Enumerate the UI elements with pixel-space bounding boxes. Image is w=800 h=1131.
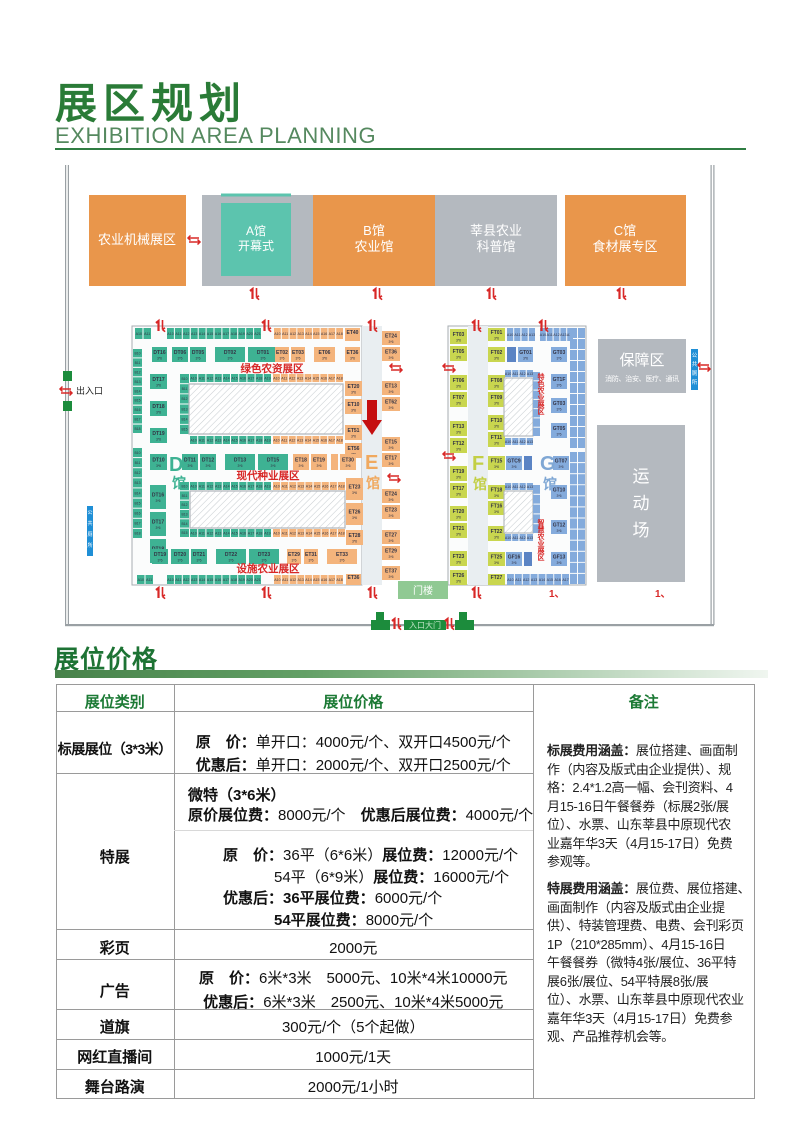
svg-text:3*6: 3*6 — [556, 561, 561, 565]
svg-text:3*6: 3*6 — [456, 533, 461, 537]
svg-text:FT06: FT06 — [453, 378, 465, 384]
svg-text:A10: A10 — [507, 333, 513, 337]
svg-text:DT18: DT18 — [152, 404, 164, 410]
svg-text:B11: B11 — [135, 361, 141, 365]
svg-text:门楼: 门楼 — [413, 584, 433, 597]
svg-text:A11: A11 — [515, 578, 521, 582]
svg-text:食材展专区: 食材展专区 — [592, 239, 657, 254]
svg-text:A11: A11 — [512, 536, 518, 540]
svg-text:A17: A17 — [329, 578, 335, 582]
svg-text:A15: A15 — [231, 531, 237, 535]
svg-text:3*6: 3*6 — [388, 340, 393, 344]
svg-text:B15: B15 — [181, 531, 187, 535]
svg-text:FT05: FT05 — [453, 349, 465, 355]
svg-text:动: 动 — [633, 494, 650, 513]
svg-text:A14: A14 — [305, 438, 311, 442]
svg-text:A14: A14 — [223, 484, 229, 488]
svg-text:A18: A18 — [336, 332, 342, 336]
svg-text:ET19: ET19 — [313, 458, 325, 464]
svg-text:A11: A11 — [199, 484, 205, 488]
svg-text:3*6: 3*6 — [156, 464, 161, 468]
svg-text:ET24: ET24 — [385, 492, 397, 498]
svg-text:A13: A13 — [560, 333, 566, 337]
svg-text:A18: A18 — [336, 438, 342, 442]
svg-text:GT05: GT05 — [553, 426, 566, 432]
svg-text:A17: A17 — [223, 578, 229, 582]
svg-text:3*6: 3*6 — [352, 516, 357, 520]
svg-text:FT17: FT17 — [453, 486, 465, 492]
svg-text:B馆: B馆 — [363, 223, 385, 238]
svg-text:DT16: DT16 — [152, 493, 164, 499]
svg-text:B17: B17 — [134, 522, 140, 526]
svg-text:开幕式: 开幕式 — [238, 239, 274, 253]
svg-text:A16: A16 — [240, 376, 246, 380]
svg-text:DT21: DT21 — [193, 552, 205, 558]
svg-text:ET36: ET36 — [347, 350, 359, 356]
svg-text:A18: A18 — [256, 376, 262, 380]
svg-text:GF16: GF16 — [508, 555, 521, 561]
svg-text:B18: B18 — [134, 532, 140, 536]
svg-text:A10: A10 — [190, 376, 196, 380]
svg-text:DT22: DT22 — [225, 552, 237, 558]
svg-text:3*6: 3*6 — [339, 559, 344, 563]
svg-text:3*6: 3*6 — [237, 464, 242, 468]
svg-text:DT06: DT06 — [174, 350, 186, 356]
svg-text:FT16: FT16 — [491, 504, 503, 510]
svg-text:ET02: ET02 — [276, 350, 288, 356]
svg-text:A15: A15 — [313, 332, 319, 336]
svg-text:A馆: A馆 — [246, 223, 266, 238]
svg-text:B10: B10 — [181, 377, 187, 381]
svg-text:3*6: 3*6 — [456, 339, 461, 343]
svg-text:A19: A19 — [264, 484, 270, 488]
svg-text:FT27: FT27 — [491, 575, 503, 581]
svg-text:ET40: ET40 — [347, 330, 359, 336]
svg-text:GT01: GT01 — [519, 350, 532, 356]
svg-text:FT03: FT03 — [453, 332, 465, 338]
svg-text:A14: A14 — [223, 376, 229, 380]
svg-text:A19: A19 — [238, 578, 244, 582]
svg-text:A11: A11 — [199, 376, 205, 380]
svg-text:A13: A13 — [297, 332, 303, 336]
svg-text:GT03: GT03 — [553, 401, 566, 407]
svg-text:ET30: ET30 — [342, 458, 354, 464]
svg-text:A14: A14 — [223, 438, 229, 442]
svg-text:A11: A11 — [199, 438, 205, 442]
svg-text:ET17: ET17 — [385, 456, 397, 462]
svg-text:A10: A10 — [505, 372, 511, 376]
svg-text:A12: A12 — [183, 332, 189, 336]
svg-text:3*6: 3*6 — [456, 402, 461, 406]
svg-text:ET36: ET36 — [348, 575, 360, 581]
svg-text:A16: A16 — [240, 531, 246, 535]
svg-text:ET20: ET20 — [348, 384, 360, 390]
svg-text:FT19: FT19 — [453, 469, 465, 475]
svg-text:A13: A13 — [191, 332, 197, 336]
svg-text:A12: A12 — [521, 333, 527, 337]
svg-text:A15: A15 — [547, 578, 553, 582]
svg-text:E: E — [365, 452, 378, 474]
svg-text:DT20: DT20 — [174, 552, 186, 558]
svg-text:A11: A11 — [512, 485, 518, 489]
svg-text:A18: A18 — [256, 484, 262, 488]
svg-text:A13: A13 — [298, 484, 304, 488]
svg-text:3*6: 3*6 — [511, 465, 516, 469]
svg-text:3*6: 3*6 — [456, 431, 461, 435]
svg-text:ET29: ET29 — [288, 552, 300, 558]
svg-text:A16: A16 — [322, 531, 328, 535]
svg-text:3*6: 3*6 — [556, 494, 561, 498]
svg-text:A10: A10 — [138, 578, 144, 582]
svg-text:GF13: GF13 — [553, 555, 566, 561]
svg-text:A11: A11 — [281, 438, 287, 442]
svg-text:A17: A17 — [562, 578, 568, 582]
svg-text:A13: A13 — [527, 485, 533, 489]
svg-text:1、: 1、 — [549, 589, 565, 600]
svg-text:农业馆: 农业馆 — [354, 239, 393, 254]
svg-text:ET33: ET33 — [336, 552, 348, 558]
svg-text:3*6: 3*6 — [260, 357, 265, 361]
svg-text:A14: A14 — [306, 484, 312, 488]
svg-text:A13: A13 — [215, 438, 221, 442]
svg-text:3*6: 3*6 — [187, 464, 192, 468]
svg-text:ET03: ET03 — [292, 350, 304, 356]
svg-text:B13: B13 — [181, 513, 187, 517]
svg-text:3*6: 3*6 — [291, 559, 296, 563]
svg-text:A17: A17 — [248, 484, 254, 488]
svg-text:B10: B10 — [134, 352, 140, 356]
svg-text:B14: B14 — [181, 522, 187, 526]
svg-text:FT21: FT21 — [453, 526, 465, 532]
svg-text:B12: B12 — [181, 503, 187, 507]
svg-text:3*6: 3*6 — [157, 559, 162, 563]
svg-text:A13: A13 — [298, 531, 304, 535]
svg-text:A10: A10 — [273, 438, 279, 442]
svg-text:DT17: DT17 — [152, 377, 164, 383]
svg-text:A18: A18 — [231, 578, 237, 582]
svg-text:A18: A18 — [256, 438, 262, 442]
svg-text:3*6: 3*6 — [494, 494, 499, 498]
svg-text:FT26: FT26 — [453, 573, 465, 579]
svg-text:A13: A13 — [191, 578, 197, 582]
svg-text:3*6: 3*6 — [456, 580, 461, 584]
svg-text:DT02: DT02 — [224, 350, 236, 356]
svg-text:FT18: FT18 — [491, 488, 503, 494]
svg-text:A18: A18 — [338, 531, 344, 535]
svg-text:A20: A20 — [246, 578, 252, 582]
svg-text:A15: A15 — [231, 484, 237, 488]
svg-text:GT12: GT12 — [553, 523, 566, 529]
svg-text:3*6: 3*6 — [228, 559, 233, 563]
svg-text:A16: A16 — [554, 578, 560, 582]
svg-text:3*6: 3*6 — [177, 559, 182, 563]
svg-text:A16: A16 — [321, 376, 327, 380]
svg-text:3*6: 3*6 — [388, 575, 393, 579]
svg-text:ET13: ET13 — [385, 384, 397, 390]
svg-text:A12: A12 — [519, 536, 525, 540]
svg-text:B10: B10 — [134, 451, 140, 455]
svg-text:B11: B11 — [135, 461, 141, 465]
svg-text:A17: A17 — [330, 484, 336, 488]
svg-text:B12: B12 — [181, 397, 187, 401]
svg-text:A11: A11 — [199, 531, 205, 535]
svg-text:A11: A11 — [282, 578, 288, 582]
svg-text:3*6: 3*6 — [157, 357, 162, 361]
svg-text:B15: B15 — [134, 501, 140, 505]
svg-text:A12: A12 — [207, 438, 213, 442]
svg-text:3*6: 3*6 — [205, 464, 210, 468]
svg-text:3*6: 3*6 — [351, 391, 356, 395]
svg-text:ET26: ET26 — [349, 510, 361, 516]
svg-text:ET18: ET18 — [295, 458, 307, 464]
svg-text:A11: A11 — [175, 332, 181, 336]
svg-text:A17: A17 — [248, 376, 254, 380]
svg-text:GTC9: GTC9 — [507, 459, 521, 465]
svg-text:A11: A11 — [514, 333, 520, 337]
svg-text:3*6: 3*6 — [494, 357, 499, 361]
svg-text:DT10: DT10 — [152, 458, 164, 464]
svg-text:B12: B12 — [134, 471, 140, 475]
svg-text:3*6: 3*6 — [556, 529, 561, 533]
svg-text:B13: B13 — [134, 380, 140, 384]
svg-text:A18: A18 — [338, 484, 344, 488]
svg-text:A14: A14 — [539, 578, 545, 582]
svg-text:3*6: 3*6 — [556, 408, 561, 412]
svg-text:A10: A10 — [273, 376, 279, 380]
svg-text:A10: A10 — [505, 440, 511, 444]
svg-text:DT01: DT01 — [257, 350, 269, 356]
svg-text:A14: A14 — [199, 332, 205, 336]
svg-text:GT07: GT07 — [555, 459, 568, 465]
svg-text:A11: A11 — [547, 333, 553, 337]
svg-text:A16: A16 — [240, 438, 246, 442]
svg-text:FT12: FT12 — [453, 441, 465, 447]
svg-text:A15: A15 — [231, 438, 237, 442]
svg-text:ET62: ET62 — [385, 400, 397, 406]
svg-text:现代种业展区: 现代种业展区 — [237, 469, 300, 482]
svg-text:3*6: 3*6 — [556, 433, 561, 437]
svg-text:A12: A12 — [290, 578, 296, 582]
svg-text:3*6: 3*6 — [494, 385, 499, 389]
svg-text:A15: A15 — [314, 484, 320, 488]
svg-text:A12: A12 — [553, 333, 559, 337]
svg-text:ET56: ET56 — [348, 446, 360, 452]
svg-text:ET23: ET23 — [385, 508, 397, 514]
svg-text:A18: A18 — [231, 332, 237, 336]
svg-text:A12: A12 — [523, 578, 529, 582]
svg-text:3*6: 3*6 — [511, 561, 516, 565]
svg-text:A10: A10 — [274, 332, 280, 336]
svg-text:3*6: 3*6 — [270, 464, 275, 468]
svg-text:FT25: FT25 — [491, 555, 503, 561]
svg-text:A10: A10 — [273, 484, 279, 488]
svg-text:ET37: ET37 — [385, 569, 397, 575]
svg-text:3*6: 3*6 — [295, 357, 300, 361]
svg-text:A11: A11 — [282, 484, 288, 488]
svg-text:A21: A21 — [254, 332, 260, 336]
svg-text:3*6: 3*6 — [308, 559, 313, 563]
svg-text:A13: A13 — [215, 376, 221, 380]
svg-text:3*6: 3*6 — [523, 357, 528, 361]
svg-text:D: D — [169, 454, 183, 476]
svg-text:ET06: ET06 — [319, 350, 331, 356]
svg-text:A15: A15 — [231, 376, 237, 380]
svg-text:3*6: 3*6 — [388, 514, 393, 518]
svg-text:3*6: 3*6 — [456, 516, 461, 520]
svg-text:B16: B16 — [134, 512, 140, 516]
svg-text:A10: A10 — [505, 485, 511, 489]
svg-text:FT20: FT20 — [453, 509, 465, 515]
svg-text:DT13: DT13 — [234, 458, 246, 464]
svg-text:农业机械展区: 农业机械展区 — [98, 232, 176, 247]
svg-text:特色农业展区: 特色农业展区 — [537, 372, 546, 416]
svg-text:FT02: FT02 — [491, 350, 503, 356]
svg-text:B14: B14 — [134, 389, 140, 393]
svg-text:3*6: 3*6 — [298, 464, 303, 468]
svg-text:A15: A15 — [313, 438, 319, 442]
svg-text:B11: B11 — [182, 494, 188, 498]
svg-text:FT09: FT09 — [491, 395, 503, 401]
svg-text:FT10: FT10 — [491, 418, 503, 424]
svg-text:3*6: 3*6 — [388, 498, 393, 502]
svg-text:A14: A14 — [305, 578, 311, 582]
svg-text:FT08: FT08 — [491, 378, 503, 384]
svg-text:A17: A17 — [328, 438, 334, 442]
svg-text:A12: A12 — [290, 531, 296, 535]
svg-text:莘县农业: 莘县农业 — [470, 223, 522, 238]
svg-text:3*6: 3*6 — [388, 539, 393, 543]
svg-text:A12: A12 — [207, 376, 213, 380]
svg-text:智慧农业展区: 智慧农业展区 — [537, 518, 546, 562]
svg-text:B14: B14 — [134, 491, 140, 495]
svg-text:科普馆: 科普馆 — [476, 239, 515, 254]
svg-text:A13: A13 — [527, 536, 533, 540]
svg-text:A17: A17 — [329, 332, 335, 336]
svg-text:3*6: 3*6 — [456, 561, 461, 565]
svg-text:A15: A15 — [314, 531, 320, 535]
svg-text:3*6: 3*6 — [156, 438, 161, 442]
svg-text:A14: A14 — [306, 531, 312, 535]
svg-text:A14: A14 — [199, 578, 205, 582]
svg-text:A15: A15 — [313, 578, 319, 582]
svg-text:A16: A16 — [322, 484, 328, 488]
svg-text:3*6: 3*6 — [388, 356, 393, 360]
svg-text:A10: A10 — [136, 332, 142, 336]
svg-text:3*6: 3*6 — [494, 510, 499, 514]
svg-text:ET23: ET23 — [349, 485, 361, 491]
svg-text:3*6: 3*6 — [261, 559, 266, 563]
svg-text:A15: A15 — [313, 376, 319, 380]
svg-text:A10: A10 — [505, 536, 511, 540]
svg-text:3*6: 3*6 — [494, 465, 499, 469]
svg-text:3*6: 3*6 — [195, 357, 200, 361]
svg-text:3*6: 3*6 — [456, 448, 461, 452]
svg-text:A12: A12 — [207, 484, 213, 488]
svg-text:FT22: FT22 — [491, 529, 503, 535]
svg-text:保障区: 保障区 — [619, 351, 664, 369]
svg-text:A14: A14 — [305, 376, 311, 380]
svg-text:A17: A17 — [248, 438, 254, 442]
svg-text:3*6: 3*6 — [196, 559, 201, 563]
svg-text:3*6: 3*6 — [352, 540, 357, 544]
svg-text:消防、治安、医疗、通讯: 消防、治安、医疗、通讯 — [605, 374, 679, 383]
svg-text:B18: B18 — [134, 427, 140, 431]
svg-text:ET24: ET24 — [385, 334, 397, 340]
svg-text:A20: A20 — [246, 332, 252, 336]
svg-text:3*6: 3*6 — [494, 425, 499, 429]
svg-text:FT23: FT23 — [453, 554, 465, 560]
svg-text:B17: B17 — [134, 418, 140, 422]
svg-text:A12: A12 — [290, 484, 296, 488]
svg-text:A14: A14 — [305, 332, 311, 336]
svg-text:F: F — [472, 453, 484, 475]
svg-text:A12: A12 — [290, 332, 296, 336]
svg-text:ET15: ET15 — [385, 440, 397, 446]
svg-text:A13: A13 — [527, 372, 533, 376]
svg-text:3*6: 3*6 — [155, 499, 160, 503]
svg-text:A18: A18 — [336, 376, 342, 380]
svg-text:A18: A18 — [336, 578, 342, 582]
svg-text:馆: 馆 — [473, 476, 487, 492]
svg-text:C馆: C馆 — [614, 223, 636, 238]
svg-text:A12: A12 — [207, 531, 213, 535]
svg-text:3*6: 3*6 — [388, 462, 393, 466]
svg-text:A10: A10 — [167, 332, 173, 336]
svg-text:3*6: 3*6 — [494, 536, 499, 540]
svg-text:A13: A13 — [215, 531, 221, 535]
svg-text:DT15: DT15 — [267, 458, 279, 464]
svg-text:A17: A17 — [223, 332, 229, 336]
svg-text:3*6: 3*6 — [388, 555, 393, 559]
svg-text:A12: A12 — [289, 438, 295, 442]
svg-text:A11: A11 — [144, 332, 150, 336]
svg-text:ET10: ET10 — [348, 402, 360, 408]
svg-text:3*6: 3*6 — [227, 357, 232, 361]
svg-text:GT1F: GT1F — [553, 377, 566, 383]
svg-text:DT05: DT05 — [192, 350, 204, 356]
svg-text:1、: 1、 — [655, 589, 671, 600]
svg-text:3*6: 3*6 — [322, 357, 327, 361]
svg-text:DT19: DT19 — [154, 552, 166, 558]
svg-text:DT19: DT19 — [152, 431, 164, 437]
svg-text:A13: A13 — [297, 376, 303, 380]
svg-text:3*6: 3*6 — [388, 446, 393, 450]
svg-text:B13: B13 — [181, 407, 187, 411]
svg-text:A13: A13 — [297, 438, 303, 442]
svg-text:FT15: FT15 — [491, 459, 503, 465]
svg-text:B13: B13 — [134, 481, 140, 485]
svg-text:3*6: 3*6 — [494, 402, 499, 406]
svg-text:GT03: GT03 — [553, 350, 566, 356]
svg-text:B15: B15 — [181, 428, 187, 432]
svg-text:A11: A11 — [146, 578, 152, 582]
svg-text:B10: B10 — [181, 485, 187, 489]
svg-text:3*6: 3*6 — [494, 442, 499, 446]
svg-text:FT07: FT07 — [453, 395, 465, 401]
svg-text:3*6: 3*6 — [388, 390, 393, 394]
svg-text:3*6: 3*6 — [351, 409, 356, 413]
svg-text:A16: A16 — [321, 332, 327, 336]
svg-text:3*6: 3*6 — [351, 435, 356, 439]
svg-text:A11: A11 — [512, 440, 518, 444]
svg-text:ET27: ET27 — [385, 533, 397, 539]
svg-text:A15: A15 — [207, 332, 213, 336]
svg-text:A14: A14 — [223, 531, 229, 535]
svg-text:A16: A16 — [215, 332, 221, 336]
svg-text:3*6: 3*6 — [156, 384, 161, 388]
svg-text:A19: A19 — [238, 332, 244, 336]
svg-text:3*6: 3*6 — [345, 464, 350, 468]
